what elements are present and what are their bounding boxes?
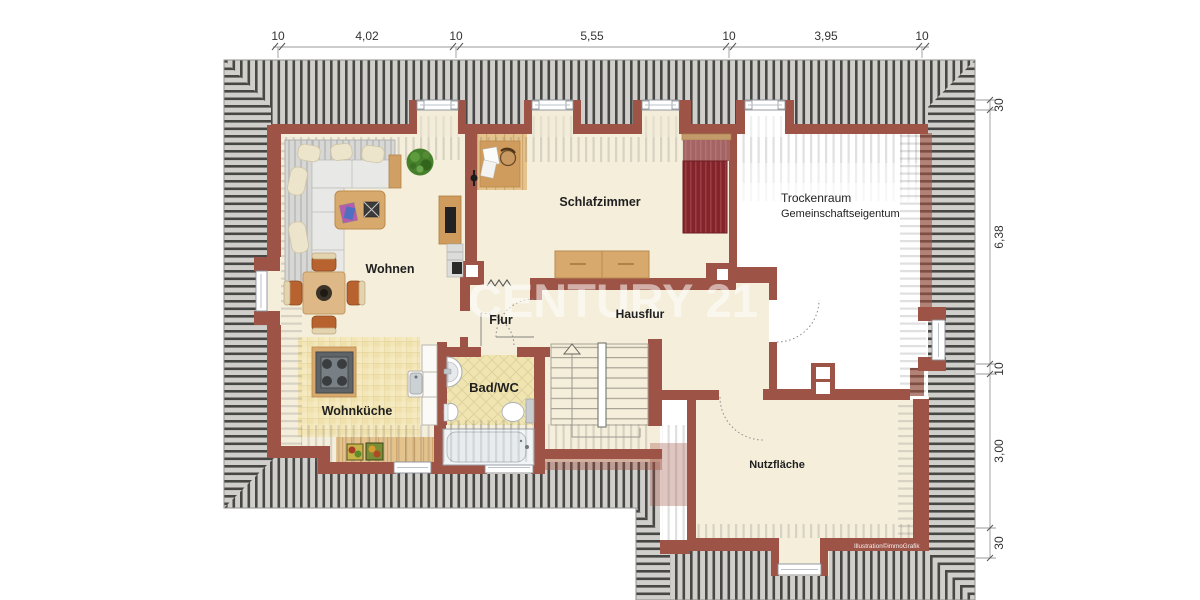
svg-text:Nutzfläche: Nutzfläche	[749, 459, 805, 471]
svg-text:3,95: 3,95	[814, 29, 838, 43]
svg-text:3,00: 3,00	[992, 439, 1006, 463]
svg-text:Illustration©immoGrafik: Illustration©immoGrafik	[854, 542, 920, 550]
svg-text:10: 10	[722, 29, 736, 43]
svg-text:Schlafzimmer: Schlafzimmer	[559, 195, 640, 209]
svg-text:Wohnküche: Wohnküche	[322, 404, 393, 418]
svg-text:6,38: 6,38	[992, 225, 1006, 249]
svg-text:Trockenraum: Trockenraum	[781, 191, 851, 205]
svg-text:10: 10	[992, 362, 1006, 376]
svg-text:Flur: Flur	[489, 313, 513, 327]
svg-text:4,02: 4,02	[355, 29, 379, 43]
svg-text:10: 10	[449, 29, 463, 43]
svg-text:30: 30	[992, 536, 1006, 550]
svg-text:Bad/WC: Bad/WC	[469, 380, 519, 395]
svg-text:Hausflur: Hausflur	[616, 307, 665, 321]
svg-text:5,55: 5,55	[580, 29, 604, 43]
svg-text:30: 30	[992, 98, 1006, 112]
svg-text:Gemeinschaftseigentum: Gemeinschaftseigentum	[781, 208, 900, 220]
svg-text:10: 10	[915, 29, 929, 43]
svg-text:Wohnen: Wohnen	[365, 262, 414, 276]
svg-text:10: 10	[271, 29, 285, 43]
